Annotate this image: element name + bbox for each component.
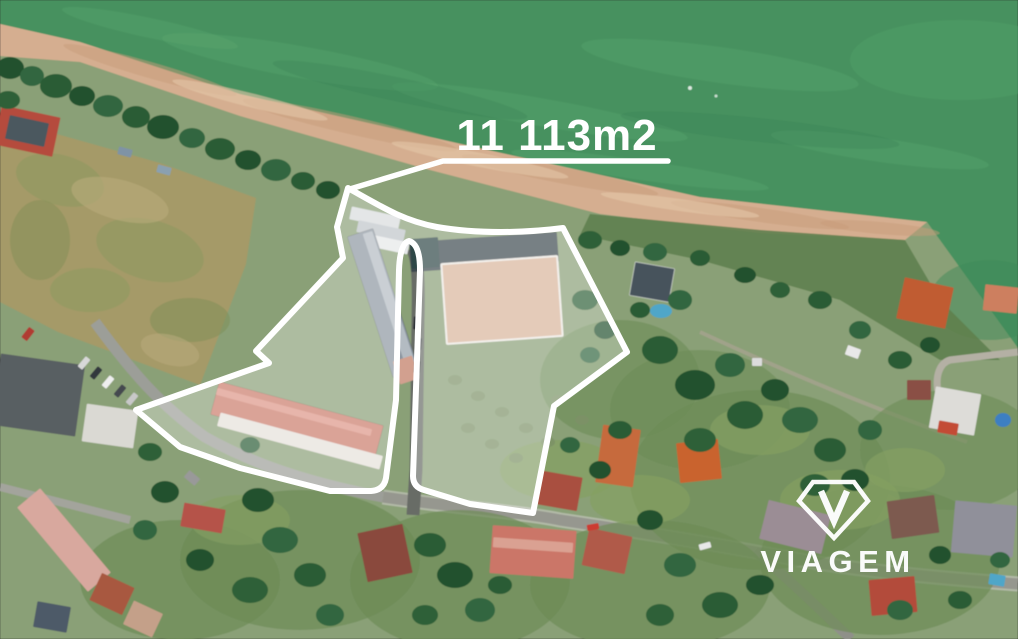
terrain-feature — [920, 337, 940, 353]
terrain-feature — [690, 250, 710, 266]
house — [887, 495, 940, 539]
terrain-feature — [465, 598, 495, 622]
terrain-feature — [578, 231, 602, 249]
terrain-feature — [865, 448, 945, 492]
terrain-feature — [770, 282, 790, 298]
terrain-feature — [675, 370, 715, 400]
aerial-view-canvas: 11 113m2 VIAGEM — [0, 0, 1018, 639]
terrain-feature — [138, 443, 162, 461]
terrain-feature — [643, 243, 667, 261]
shed — [752, 358, 762, 366]
house — [537, 471, 582, 511]
terrain-feature — [642, 336, 678, 364]
terrain-feature — [151, 481, 179, 503]
aerial-property-listing-image: 11 113m2 VIAGEM — [0, 0, 1018, 639]
terrain-feature — [261, 159, 291, 181]
terrain-feature — [133, 520, 157, 540]
trampoline — [995, 413, 1011, 427]
terrain-feature — [560, 437, 580, 453]
terrain-feature — [814, 438, 846, 462]
swimming-pool — [650, 304, 672, 318]
house — [82, 404, 139, 449]
terrain-feature — [235, 150, 261, 170]
terrain-feature — [715, 353, 745, 377]
house — [629, 262, 674, 302]
terrain-feature — [664, 553, 696, 577]
terrain-feature — [575, 415, 589, 425]
house — [951, 500, 1017, 557]
terrain-feature — [179, 128, 205, 148]
terrain-feature — [858, 420, 882, 440]
house — [907, 380, 931, 400]
terrain-feature — [684, 428, 716, 452]
terrain-feature — [948, 591, 972, 609]
terrain-feature — [782, 407, 818, 433]
terrain-feature — [610, 240, 630, 256]
terrain-feature — [294, 563, 326, 587]
terrain-feature — [688, 86, 692, 90]
terrain-feature — [69, 86, 95, 106]
terrain-feature — [929, 546, 951, 564]
terrain-feature — [242, 488, 274, 512]
terrain-feature — [761, 379, 789, 401]
house — [0, 353, 85, 436]
terrain-feature — [608, 421, 632, 439]
terrain-feature — [316, 181, 340, 199]
terrain-feature — [888, 351, 912, 369]
terrain-feature — [488, 576, 512, 594]
terrain-feature — [734, 267, 756, 283]
watermark-brand-text: VIAGEM — [760, 544, 915, 579]
terrain-feature — [40, 74, 72, 98]
terrain-feature — [808, 291, 832, 309]
terrain-feature — [232, 577, 268, 603]
terrain-feature — [849, 321, 871, 339]
terrain-feature — [291, 172, 315, 190]
house — [983, 284, 1018, 313]
terrain-feature — [412, 605, 438, 625]
terrain-feature — [414, 533, 446, 557]
terrain-feature — [316, 604, 344, 626]
terrain-feature — [10, 200, 70, 280]
terrain-feature — [887, 600, 913, 620]
terrain-feature — [668, 290, 692, 310]
terrain-feature — [147, 115, 179, 139]
terrain-feature — [715, 95, 718, 98]
terrain-feature — [93, 95, 123, 117]
terrain-feature — [646, 604, 674, 626]
terrain-feature — [50, 268, 130, 312]
terrain-feature — [589, 461, 611, 479]
terrain-feature — [630, 302, 650, 318]
terrain-feature — [20, 66, 44, 86]
terrain-feature — [437, 562, 473, 588]
area-label: 11 113m2 — [456, 111, 657, 160]
terrain-feature — [205, 138, 235, 160]
terrain-feature — [727, 401, 763, 429]
terrain-feature — [637, 510, 663, 530]
terrain-feature — [990, 552, 1010, 568]
terrain-feature — [122, 106, 150, 128]
terrain-feature — [702, 592, 738, 618]
terrain-feature — [262, 527, 298, 553]
terrain-feature — [186, 549, 214, 571]
